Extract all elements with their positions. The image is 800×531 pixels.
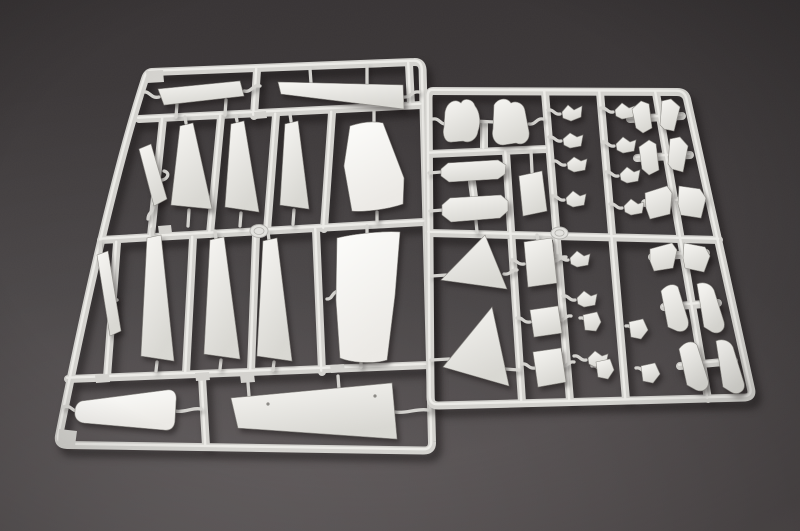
vignette	[0, 0, 800, 531]
photo-canvas	[0, 0, 800, 531]
sprue-photo	[0, 0, 800, 531]
